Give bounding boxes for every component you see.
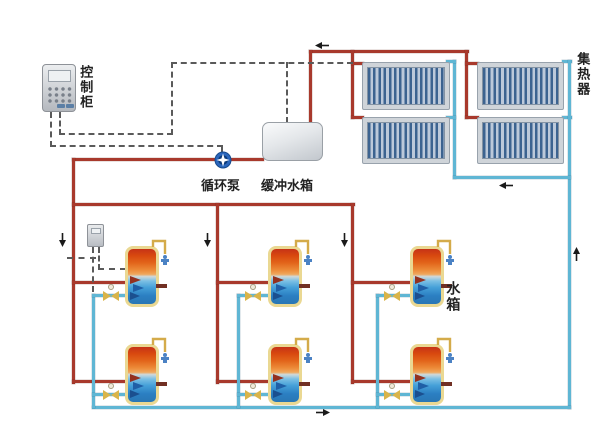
water-flow-arrow	[130, 390, 140, 398]
water-flow-arrow	[276, 382, 287, 390]
control-cabinet	[42, 64, 76, 112]
buffer-tank	[262, 122, 323, 161]
tank-controller	[87, 224, 104, 247]
collector-tubes	[482, 67, 559, 105]
solar-collector-label: 集热器	[575, 52, 589, 97]
flow-arrow-up-icon	[572, 246, 581, 262]
faucet-icon	[436, 336, 460, 366]
circulation-pump-icon	[214, 151, 232, 169]
water-flow-arrow	[273, 390, 283, 398]
cabinet-button	[66, 104, 74, 108]
water-flow-arrow	[273, 292, 283, 300]
cold-return-manifold	[92, 406, 571, 409]
collector-tubes	[482, 122, 559, 159]
control-wire-valve	[92, 247, 94, 292]
collector-tubes	[367, 67, 445, 105]
flow-arrow-right-icon	[315, 408, 331, 417]
valve-icon	[245, 390, 261, 400]
control-wire-collector-sensor	[171, 62, 353, 64]
hot-riser-column-1	[72, 158, 75, 384]
hot-branch-tank	[216, 380, 271, 383]
solar-collector-panel	[362, 117, 450, 164]
control-wire-tank-sensor	[98, 247, 100, 270]
valve-icon	[103, 390, 119, 400]
buffer-tank-label: 缓冲水箱	[261, 175, 313, 194]
hot-pipe-collector-right-drop	[465, 50, 468, 119]
faucet-icon	[151, 238, 175, 268]
system-diagram: 控制柜 循环泵 缓冲水箱 集热器 水箱	[0, 0, 600, 435]
solar-collector-panel	[477, 117, 564, 164]
control-wire	[171, 62, 173, 135]
hot-pipe-pump-line	[72, 158, 264, 161]
solar-collector-panel	[362, 62, 450, 110]
tank-outlet-stub	[156, 382, 167, 386]
cold-drop-column-1	[92, 294, 95, 408]
collector-tubes	[367, 122, 445, 159]
control-cabinet-label: 控制柜	[78, 65, 92, 110]
cabinet-button	[57, 104, 65, 108]
water-flow-arrow	[415, 292, 425, 300]
circulation-pump-label: 循环泵	[201, 175, 240, 194]
faucet-icon	[294, 238, 318, 268]
cabinet-display	[48, 70, 71, 82]
tank-outlet-stub	[299, 382, 310, 386]
tank-outlet-stub	[299, 284, 310, 288]
control-wire	[59, 133, 173, 135]
flow-arrow-left-icon	[314, 41, 330, 50]
cold-riser-right	[568, 60, 571, 409]
valve-icon	[384, 291, 400, 301]
flow-arrow-down-icon	[58, 232, 67, 248]
hot-pipe-collector-header	[309, 50, 469, 53]
tank-controller-display	[91, 228, 101, 234]
water-flow-arrow	[415, 390, 425, 398]
cold-drop-column-3	[376, 294, 379, 408]
water-flow-arrow	[276, 284, 287, 292]
water-flow-arrow	[418, 382, 429, 390]
water-flow-arrow	[133, 284, 144, 292]
hot-pipe-collector-left-drop	[351, 50, 354, 119]
tank-outlet-stub	[441, 382, 452, 386]
control-wire-buffer-sensor	[286, 62, 288, 123]
control-wire-tank-sensor	[98, 268, 126, 270]
faucet-icon	[151, 336, 175, 366]
hot-branch-tank	[72, 380, 129, 383]
tank-outlet-stub	[156, 284, 167, 288]
solar-collector-panel	[477, 62, 564, 110]
cold-pipe-collector-left	[453, 60, 456, 179]
control-wire	[59, 112, 61, 135]
hot-branch-tank	[351, 281, 413, 284]
control-wire	[50, 112, 52, 147]
valve-icon	[103, 291, 119, 301]
faucet-icon	[294, 336, 318, 366]
flow-arrow-down-icon	[203, 232, 212, 248]
hot-branch-tank	[216, 281, 271, 284]
hot-branch-tank	[351, 380, 413, 383]
faucet-icon	[436, 238, 460, 268]
flow-arrow-down-icon	[340, 232, 349, 248]
water-flow-arrow	[133, 382, 144, 390]
cabinet-keypad	[47, 86, 73, 103]
hot-pipe-to-buffer	[309, 50, 312, 123]
hot-branch-tank	[72, 281, 129, 284]
cold-pipe-collector-bottom	[453, 176, 571, 179]
hot-riser-column-2	[216, 203, 219, 384]
hot-riser-column-3	[351, 203, 354, 384]
cold-drop-column-2	[237, 294, 240, 408]
valve-icon	[384, 390, 400, 400]
flow-arrow-left-icon	[498, 181, 514, 190]
hot-distribution-header	[72, 203, 355, 206]
valve-icon	[245, 291, 261, 301]
water-flow-arrow	[418, 284, 429, 292]
water-tank-label: 水箱	[445, 281, 460, 313]
control-wire-pump	[50, 145, 223, 147]
water-flow-arrow	[130, 292, 140, 300]
